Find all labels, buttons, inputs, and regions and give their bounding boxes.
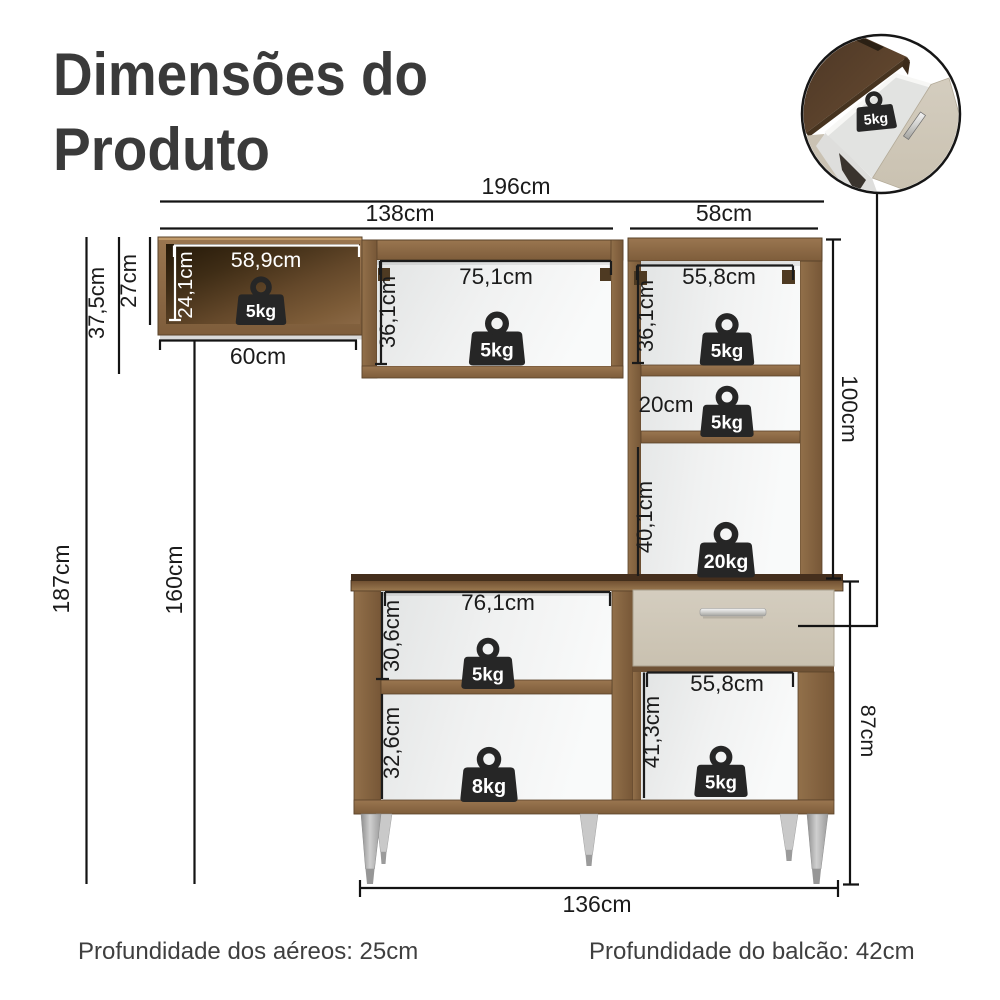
svg-text:Profundidade dos aéreos: 25cm: Profundidade dos aéreos: 25cm [78,938,418,965]
svg-text:5kg: 5kg [863,109,889,127]
svg-text:60cm: 60cm [230,343,286,369]
svg-text:196cm: 196cm [481,173,550,199]
svg-text:187cm: 187cm [48,544,74,613]
svg-text:138cm: 138cm [365,200,434,226]
svg-text:36,1cm: 36,1cm [375,276,400,348]
svg-text:41,3cm: 41,3cm [639,696,664,768]
svg-text:30,6cm: 30,6cm [379,600,404,672]
svg-text:Profundidade do balcão: 42cm: Profundidade do balcão: 42cm [589,938,915,965]
svg-text:76,1cm: 76,1cm [461,590,535,615]
svg-text:20kg: 20kg [704,551,749,573]
svg-text:55,8cm: 55,8cm [690,671,764,696]
svg-text:24,1cm: 24,1cm [174,251,197,318]
svg-text:87cm: 87cm [856,705,880,758]
svg-text:100cm: 100cm [837,375,862,443]
svg-text:5kg: 5kg [472,663,504,684]
svg-text:40,1cm: 40,1cm [632,481,657,553]
svg-text:36,1cm: 36,1cm [633,280,658,352]
svg-text:75,1cm: 75,1cm [459,264,533,289]
svg-text:58cm: 58cm [696,200,752,226]
svg-text:8kg: 8kg [472,776,506,798]
svg-text:5kg: 5kg [705,771,737,792]
svg-text:20cm: 20cm [638,392,693,417]
svg-text:Produto: Produto [53,116,270,183]
svg-text:5kg: 5kg [246,301,276,321]
svg-text:5kg: 5kg [711,341,744,362]
svg-text:58,9cm: 58,9cm [231,248,302,272]
svg-text:32,6cm: 32,6cm [379,707,404,779]
svg-text:Dimensões do: Dimensões do [53,41,428,108]
svg-text:5kg: 5kg [480,340,514,362]
svg-text:160cm: 160cm [161,545,187,614]
svg-text:55,8cm: 55,8cm [682,264,756,289]
svg-text:37,5cm: 37,5cm [84,267,109,339]
svg-text:136cm: 136cm [562,891,631,917]
svg-text:5kg: 5kg [711,411,743,432]
